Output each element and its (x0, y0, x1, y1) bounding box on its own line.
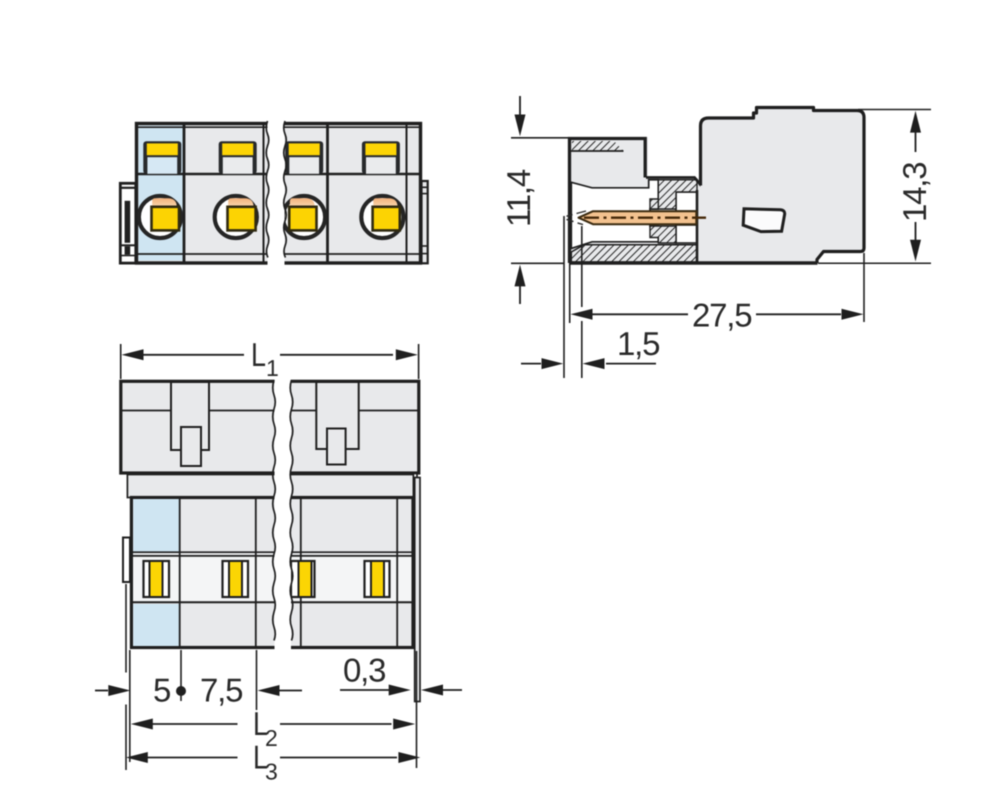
svg-text:14,3: 14,3 (896, 163, 933, 222)
svg-text:L: L (251, 336, 266, 373)
svg-text:3: 3 (265, 759, 277, 785)
svg-text:1,5: 1,5 (617, 325, 659, 362)
svg-text:1: 1 (266, 355, 278, 381)
svg-text:11,4: 11,4 (500, 169, 537, 227)
svg-text:27,5: 27,5 (692, 297, 751, 334)
svg-text:7,5: 7,5 (200, 672, 242, 709)
svg-text:5: 5 (153, 672, 170, 709)
svg-text:0,3: 0,3 (343, 652, 385, 689)
